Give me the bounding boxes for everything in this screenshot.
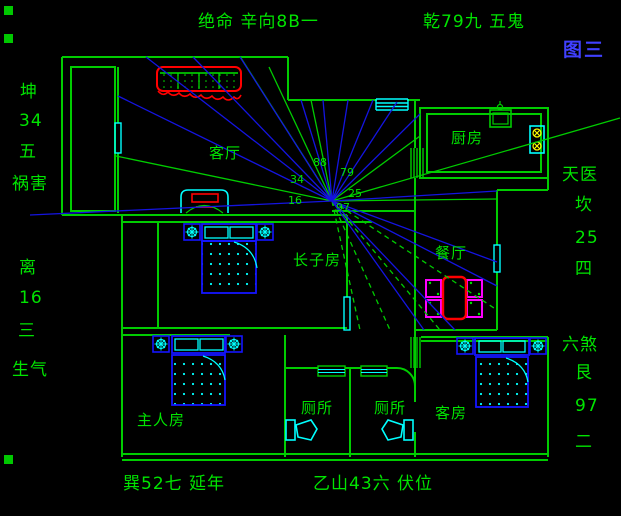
room-toilet-left: 厕所 bbox=[301, 401, 333, 416]
compass-number: 25 bbox=[348, 188, 362, 199]
compass-number: 97 bbox=[336, 202, 350, 213]
room-toilet-right: 厕所 bbox=[374, 401, 406, 416]
room-living: 客厅 bbox=[209, 146, 241, 161]
label-li: 离 bbox=[19, 260, 37, 277]
bed-master bbox=[153, 336, 242, 405]
label-bottom-center: 乙山43六 伏位 bbox=[313, 476, 433, 493]
label-san: 三 bbox=[18, 323, 36, 340]
label-kan: 坎 bbox=[575, 197, 593, 214]
room-guest: 客房 bbox=[435, 406, 467, 421]
room-eldest-son: 长子房 bbox=[293, 253, 341, 268]
compass-ray bbox=[332, 102, 397, 201]
label-34: 34 bbox=[19, 113, 43, 130]
label-er: 二 bbox=[575, 434, 593, 451]
figure-label: 图三 bbox=[563, 41, 605, 60]
label-top-right: 乾79九 五鬼 bbox=[423, 14, 525, 31]
room-kitchen: 厨房 bbox=[451, 131, 483, 146]
bed-eldest-son bbox=[184, 224, 273, 293]
compass-number: 16 bbox=[288, 195, 302, 206]
room-dining: 餐厅 bbox=[435, 246, 467, 261]
compass-number: 88 bbox=[313, 157, 327, 168]
toilet-right bbox=[382, 420, 413, 440]
label-kun: 坤 bbox=[20, 84, 38, 101]
label-gen: 艮 bbox=[575, 365, 593, 382]
toilet-left bbox=[286, 420, 317, 440]
label-97: 97 bbox=[575, 398, 599, 415]
compass-ray bbox=[332, 100, 348, 201]
dining-set bbox=[426, 277, 482, 319]
compass-number: 79 bbox=[340, 167, 354, 178]
label-shengqi: 生气 bbox=[12, 362, 48, 379]
compass-ray bbox=[193, 57, 332, 201]
compass-ray bbox=[311, 100, 332, 201]
bed-guest bbox=[457, 338, 546, 407]
label-bottom-left: 巽52七 延年 bbox=[123, 476, 225, 493]
label-25: 25 bbox=[575, 230, 599, 247]
label-tianyi: 天医 bbox=[562, 167, 598, 184]
compass-ray bbox=[240, 57, 332, 201]
window-striped-inner bbox=[318, 370, 387, 373]
compass-number: 34 bbox=[290, 174, 304, 185]
label-huohai: 祸害 bbox=[12, 176, 48, 193]
compass-ray bbox=[146, 57, 332, 201]
piano bbox=[181, 190, 228, 213]
room-master: 主人房 bbox=[137, 413, 185, 428]
label-si: 四 bbox=[575, 261, 593, 278]
label-liusha: 六煞 bbox=[562, 337, 598, 354]
label-wu: 五 bbox=[19, 144, 37, 161]
sofa bbox=[157, 67, 241, 100]
label-top-left: 绝命 辛向8B一 bbox=[198, 14, 319, 31]
label-16: 16 bbox=[19, 290, 43, 307]
floorplan-canvas: 绝命 辛向8B一 乾79九 五鬼 图三 坤 34 五 祸害 离 16 三 生气 … bbox=[0, 0, 621, 516]
